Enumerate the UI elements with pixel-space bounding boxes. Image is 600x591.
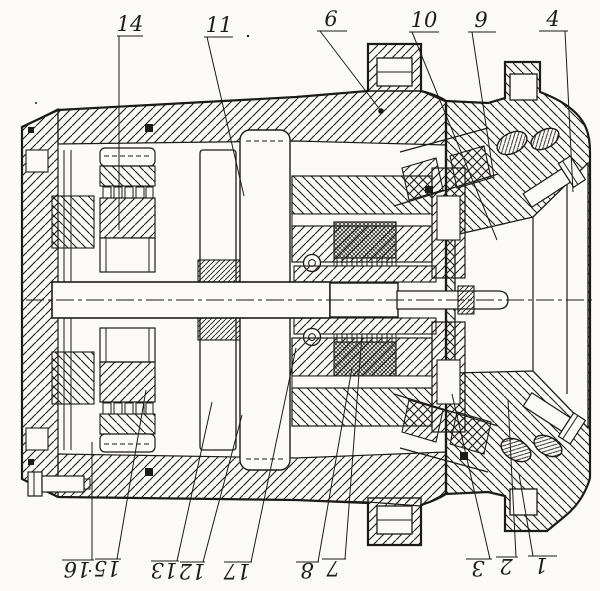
callout-14: 14 — [117, 12, 144, 36]
figure-canvas: 14 11 6 10 9 4 16 15 13 12 17 8 7 3 2 1 — [0, 0, 600, 591]
left-wall-port-lower — [26, 428, 48, 450]
planet-cap-lower — [100, 434, 155, 452]
plate-gap-lower — [292, 376, 432, 388]
seal-wall-top — [28, 127, 34, 133]
callout-17: 17 — [223, 559, 250, 583]
seal-mid-right-top — [425, 186, 433, 193]
seal-top-left — [145, 124, 153, 132]
callout-2: 2 — [499, 554, 513, 578]
spring-retainer-upper — [334, 258, 396, 266]
planet-cap-upper — [100, 148, 155, 166]
callout-8: 8 — [300, 558, 313, 582]
planet-gear-body-upper — [100, 238, 155, 272]
sun-gear-spline-upper — [198, 260, 242, 282]
bell-top-flange-bolt-hole — [510, 74, 537, 100]
callout-12: 12 — [179, 559, 206, 583]
callout-7: 7 — [326, 556, 340, 580]
callout-16: 16 — [64, 557, 91, 581]
callout-4: 4 — [545, 7, 559, 31]
callout-10: 10 — [411, 8, 438, 32]
callout-1: 1 — [534, 553, 547, 577]
shaft-sleeve-upper — [294, 266, 436, 282]
ring-gear-upper — [100, 166, 155, 186]
manifold-port-upper — [437, 196, 460, 240]
leader-dot-6 — [378, 108, 384, 114]
callout-15: 15 — [94, 556, 121, 580]
callout-6: 6 — [324, 7, 337, 31]
sun-gear-spline-lower — [198, 318, 242, 340]
callout-13: 13 — [151, 558, 178, 582]
callout-3: 3 — [471, 556, 484, 580]
left-wall-port-upper — [26, 150, 48, 172]
spring-pack-lower — [334, 342, 396, 378]
ring-gear-lower — [100, 414, 155, 434]
carrier-hatch-upper — [52, 196, 94, 248]
planet-gear-body-lower — [100, 328, 155, 362]
ink-dot-1 — [247, 35, 249, 37]
manifold-port-lower — [437, 360, 460, 404]
planet-core-lower — [100, 362, 155, 402]
spring-retainer-lower — [334, 334, 396, 342]
cover-bolt-bottom-left — [28, 472, 90, 496]
callout-9: 9 — [474, 8, 487, 32]
cross-section-drawing: 14 11 6 10 9 4 16 15 13 12 17 8 7 3 2 1 — [0, 0, 600, 591]
callout-11: 11 — [206, 13, 233, 37]
seal-bottom-left — [145, 468, 153, 476]
ink-dot-2 — [35, 102, 37, 104]
planet-core-upper — [100, 198, 155, 238]
seal-wall-bottom — [28, 459, 34, 465]
carrier-hatch-lower — [52, 352, 94, 404]
spring-pack-upper — [334, 222, 396, 258]
